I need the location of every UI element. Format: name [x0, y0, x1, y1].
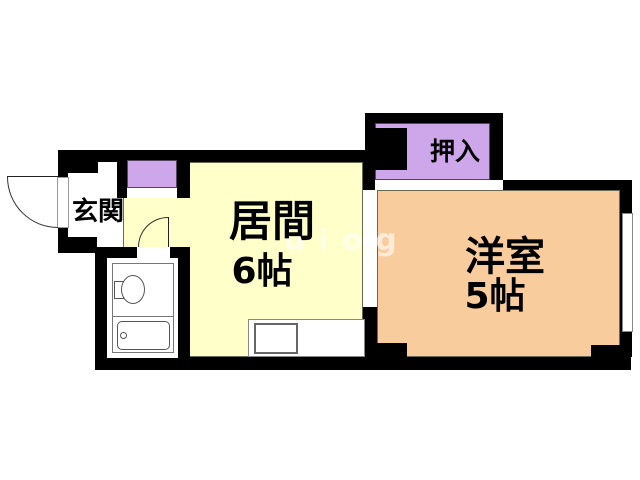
shoebox-area [127, 160, 177, 188]
wall [58, 237, 97, 253]
wall [58, 150, 365, 162]
shoebox-frame-left [117, 150, 127, 198]
room-opening [364, 190, 377, 307]
toilet-bowl [121, 275, 145, 304]
closet-label: 押入 [415, 139, 495, 164]
closet-wall-stub [365, 128, 407, 170]
western-room-size-label: 5帖 [450, 279, 540, 315]
shoebox-frame-right [177, 150, 190, 198]
closet-door [375, 180, 503, 190]
wall [377, 343, 407, 370]
genkan-label: 玄関 [68, 199, 128, 225]
western-room-top-wall [503, 180, 632, 190]
unit-bath-divider [112, 316, 174, 317]
bathroom-doorway [137, 247, 170, 258]
living-room-size-label: 6帖 [217, 254, 307, 290]
shoebox-door [127, 188, 177, 198]
bathroom-door-leaf [168, 217, 169, 247]
room-divider-bottom [363, 307, 377, 370]
wall [58, 150, 68, 177]
window [622, 213, 633, 332]
floorplan-canvas: uiog 玄関 居間 6帖 押入 洋室 5帖 [0, 0, 640, 480]
living-room-label: 居間 [222, 201, 322, 244]
bathtub-drain [120, 332, 127, 339]
kitchen-sink [254, 323, 298, 354]
entrance-door-arc [7, 177, 58, 228]
western-room-label: 洋室 [455, 237, 555, 277]
